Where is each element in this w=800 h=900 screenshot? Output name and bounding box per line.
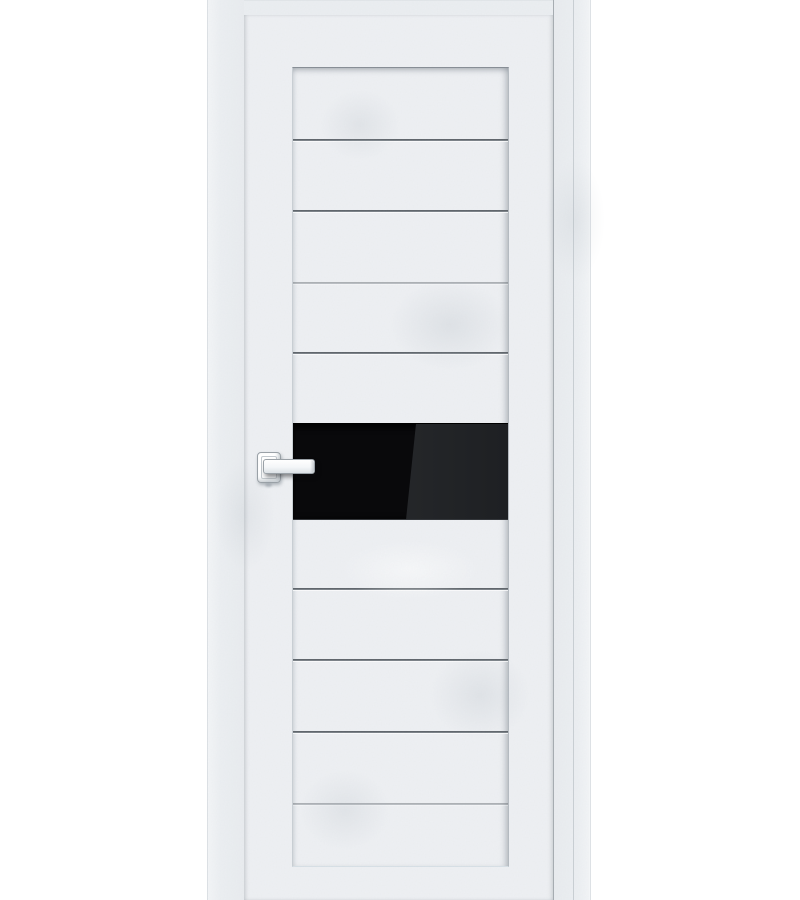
panel-groove <box>293 139 508 141</box>
door-frame-top-lintel <box>244 0 553 16</box>
panel-groove <box>293 588 508 590</box>
panel-groove <box>293 210 508 212</box>
product-photo-door <box>0 0 800 900</box>
door-frame-left-jamb <box>207 0 245 900</box>
handle-lever <box>263 459 315 474</box>
door-center-panel <box>292 67 509 867</box>
panel-groove <box>293 731 508 733</box>
door-leaf <box>244 15 553 900</box>
panel-groove <box>293 352 508 354</box>
handle-lever-end <box>310 460 314 473</box>
handle-rose-shadow <box>265 483 272 487</box>
panel-groove <box>293 659 508 661</box>
panel-groove <box>293 803 508 805</box>
door-frame-right-jamb <box>553 0 591 900</box>
frame-casing-seam <box>573 0 574 900</box>
panel-groove <box>293 282 508 284</box>
black-glass-insert <box>293 423 508 520</box>
glass-reflection <box>293 424 508 519</box>
